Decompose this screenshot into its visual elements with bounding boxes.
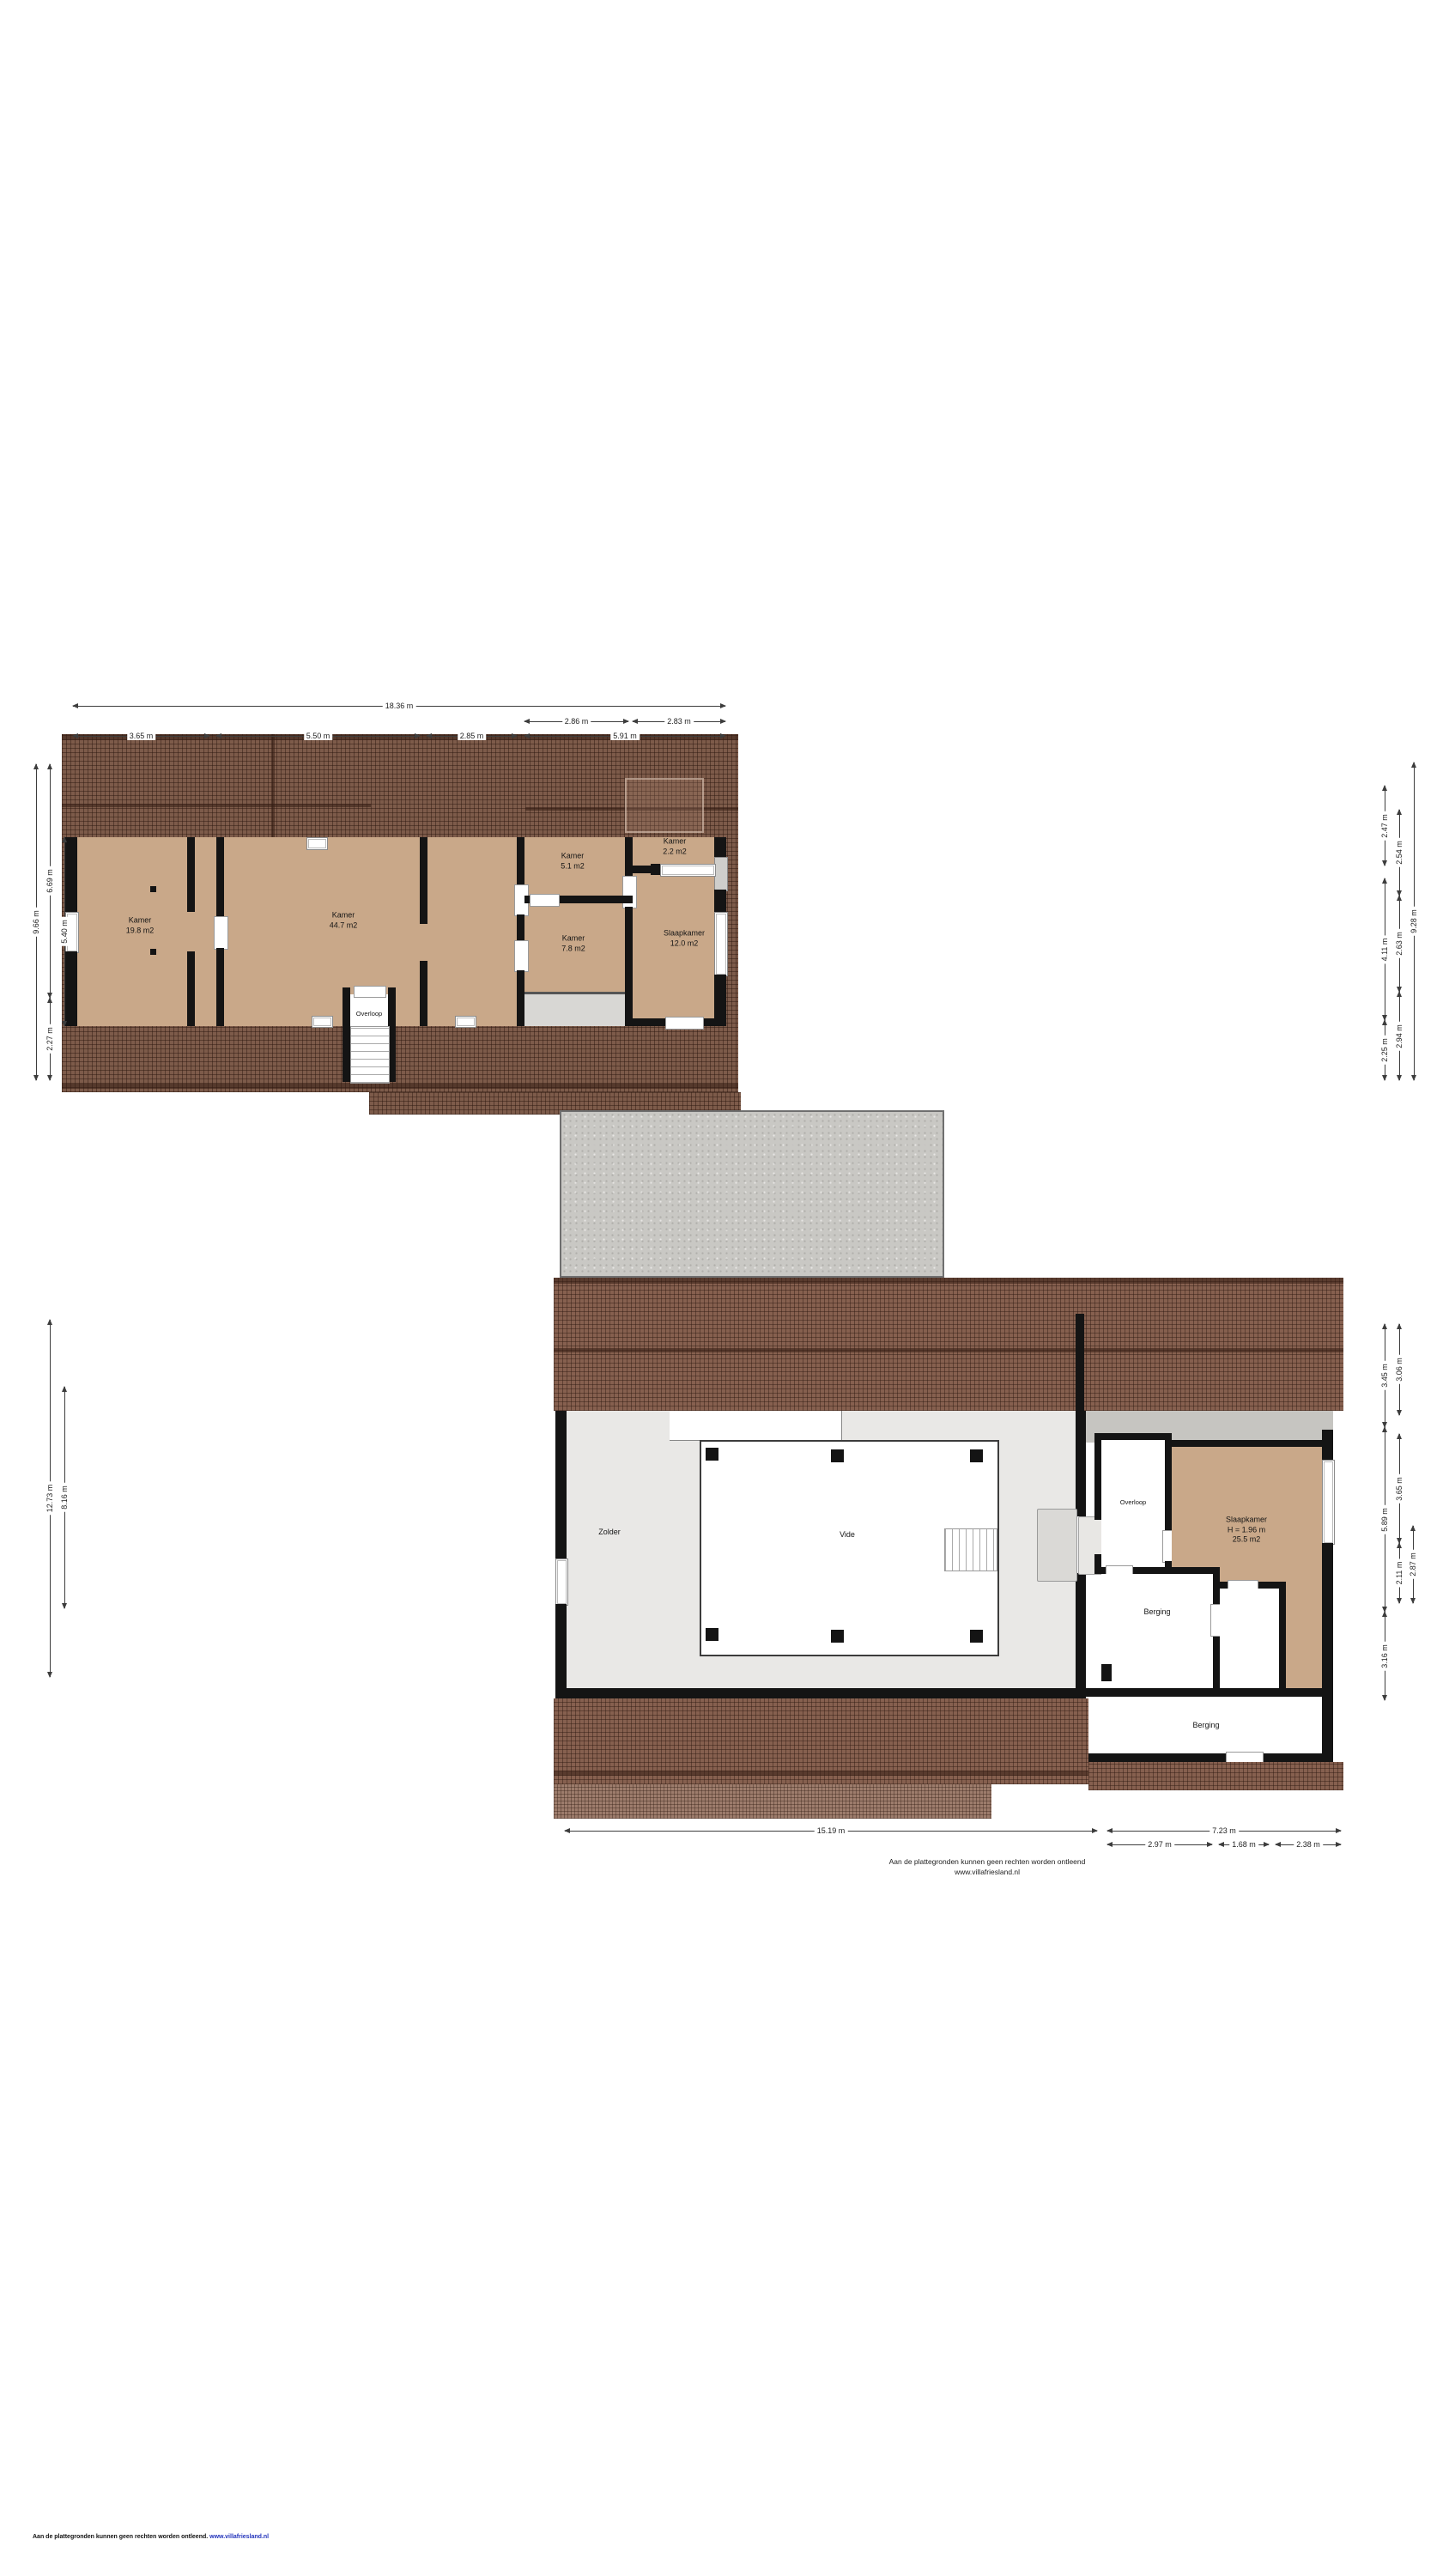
arrow-icon [62,1021,67,1027]
room-label-kamer-5-1: Kamer 5.1 m2 [561,851,585,871]
dimension-15-19-m: 15.19 m [565,1826,1097,1835]
arrow-icon [62,1603,67,1609]
dimension-label: 5.50 m [304,732,333,740]
arrow-icon [1397,1410,1402,1416]
roof-dormer [625,778,704,833]
dimension-label: 3.06 m [1395,1355,1404,1384]
window-gray [714,857,728,891]
door [514,940,529,972]
door [622,876,637,908]
dimension-6-69-m: 6.69 m [45,764,54,998]
pillar [150,886,156,892]
pillar [831,1449,844,1462]
wall-partition [420,837,427,924]
dimension-label: 2.85 m [458,732,487,740]
arrow-icon [1411,762,1416,768]
roof-ridge [62,804,371,807]
arrow-icon [72,703,78,708]
dimension-2-54-m: 2.54 m [1395,810,1404,896]
roof [554,1278,1343,1411]
room-label-berging-lower: Berging [1192,1721,1219,1731]
arrow-icon [47,1672,52,1678]
door [665,1017,704,1030]
room-label-berging-upper: Berging [1143,1607,1170,1618]
arrow-icon [524,733,530,738]
dimension-label: 5.89 m [1380,1505,1389,1534]
wall-stub [651,864,660,875]
dimension-2-94-m: 2.94 m [1395,992,1404,1080]
dimension-label: 3.65 m [127,732,156,740]
room-label-kamer-7-8: Kamer 7.8 m2 [561,933,585,953]
stairs [944,1528,997,1571]
wall-partition [216,837,224,916]
arrow-icon [1397,1323,1402,1329]
dimension-8-16-m: 8.16 m [60,1387,69,1608]
dimension-label: 18.36 m [383,702,416,710]
arrow-icon [1106,1842,1113,1847]
dimension-label: 1.68 m [1229,1840,1258,1849]
dimension-5-40-m: 5.40 m [60,837,69,1026]
room-label-slaapkamer-12-0: Slaapkamer 12.0 m2 [664,928,705,948]
room-label-vide: Vide [840,1530,855,1540]
wall-partition [420,961,427,1026]
wall-left [1094,1433,1101,1520]
arrow-icon [1207,1842,1213,1847]
door [214,916,228,950]
arrow-icon [1382,785,1387,791]
wall-divider [1076,1573,1086,1688]
arrow-icon [47,763,52,769]
door [530,894,560,907]
arrow-icon [1336,1828,1342,1833]
dimension-2-85-m: 2.85 m [427,732,517,740]
arrow-icon [1382,878,1387,884]
wall-partition [187,837,195,912]
wall-divider [1076,1411,1086,1516]
arrow-icon [426,733,432,738]
arrow-icon [72,733,78,738]
dimension-label: 9.28 m [1410,907,1418,936]
room-label-slaapkamer-25-5: Slaapkamer H = 1.96 m 25.5 m2 [1226,1515,1267,1545]
wall-partition [625,837,633,876]
dimension-label: 5.91 m [610,732,640,740]
roof-annex [1088,1762,1343,1790]
floorplan-page: 18.36 m2.86 m2.83 m3.65 m5.50 m2.85 m5.9… [0,0,1449,2576]
dimension-5-50-m: 5.50 m [216,732,420,740]
window [306,837,328,850]
wall-top [1165,1440,1333,1447]
pillar [970,1630,983,1643]
stairs [350,1026,390,1084]
wall-stub [1101,1664,1112,1681]
wall-partition [1165,1433,1172,1530]
dimension-5-91-m: 5.91 m [524,732,725,740]
arrow-icon [1410,1598,1416,1604]
dimension-2-63-m: 2.63 m [1395,896,1404,992]
dimension-3-65-m: 3.65 m [73,732,209,740]
room-label-zolder: Zolder [598,1528,621,1538]
pillar [831,1630,844,1643]
arrow-icon [415,733,421,738]
wall-right [714,837,726,857]
dimension-4-11-m: 4.11 m [1380,878,1389,1020]
arrow-icon [720,733,726,738]
arrow-icon [47,1075,52,1081]
dimension-label: 12.73 m [45,1482,54,1516]
roof-ridge [62,1084,738,1089]
arrow-icon [1397,809,1402,815]
footnote-link: www.villafriesland.nl [209,2534,269,2540]
arrow-icon [1382,1323,1387,1329]
window [455,1016,476,1028]
arrow-icon [1397,1542,1402,1548]
arrow-icon [564,1828,570,1833]
wall-partition [187,951,195,1026]
dimension-label: 2.25 m [1380,1036,1389,1065]
arrow-icon [632,719,638,724]
dimension-2-27-m: 2.27 m [45,998,54,1080]
arrow-icon [1382,860,1387,866]
roof-ridge [554,1771,1088,1776]
dimension-3-06-m: 3.06 m [1395,1324,1404,1415]
arrow-icon [720,703,726,708]
room-label-kamer-19-8: Kamer 19.8 m2 [126,915,155,935]
dimension-2-83-m: 2.83 m [633,717,725,726]
wall-bottom [555,1688,1086,1698]
arrow-icon [1218,1842,1224,1847]
dimension-12-73-m: 12.73 m [45,1320,54,1677]
arrow-icon [47,997,52,1003]
page-footnote: Aan de plattegronden kunnen geen rechten… [33,2534,269,2540]
window [660,864,716,877]
dimension-2-97-m: 2.97 m [1107,1840,1212,1849]
window [555,1558,568,1606]
dimension-7-23-m: 7.23 m [1107,1826,1341,1835]
wall-left [555,1604,567,1688]
room-label-overloop-1: Overloop [356,1010,382,1018]
dimension-label: 2.63 m [1395,929,1404,958]
dimension-2-25-m: 2.25 m [1380,1020,1389,1080]
arrow-icon [1275,1842,1281,1847]
dimension-label: 3.65 m [1395,1474,1404,1504]
window [1322,1460,1335,1545]
arrow-icon [1382,1019,1387,1025]
dimension-5-89-m: 5.89 m [1380,1427,1389,1612]
footnote-text: Aan de plattegronden kunnen geen rechten… [33,2534,209,2540]
wall-partition [216,948,224,1026]
arrow-icon [1397,895,1402,901]
roof-ridge [554,1348,1343,1352]
dimension-label: 2.38 m [1294,1840,1323,1849]
room-label-overloop-2: Overloop [1120,1498,1146,1507]
berging-floor [1101,1574,1213,1688]
landing-floor [524,994,625,1026]
pillar [706,1448,718,1461]
dimension-label: 2.86 m [562,717,591,726]
arrow-icon [1336,1842,1342,1847]
roof-valley [271,734,275,837]
dimension-label: 2.11 m [1395,1559,1404,1588]
website-url: www.villafriesland.nl [955,1868,1020,1876]
roof-lower [554,1784,991,1819]
arrow-icon [1397,1075,1402,1081]
dimension-3-45-m: 3.45 m [1380,1324,1389,1427]
arrow-icon [62,1386,67,1392]
dimension-2-86-m: 2.86 m [524,717,628,726]
dimension-1-68-m: 1.68 m [1219,1840,1269,1849]
wall-top [1094,1433,1172,1440]
wall-right [714,890,726,912]
window [714,912,728,976]
arrow-icon [512,733,518,738]
room-label-kamer-44-7: Kamer 44.7 m2 [330,910,358,930]
arrow-icon [1397,991,1402,997]
wall-partition [517,970,524,1026]
wall-partition [1086,1688,1333,1697]
roof-ridge [554,1278,1343,1284]
dimension-label: 2.27 m [45,1024,54,1054]
dimension-9-66-m: 9.66 m [32,764,40,1080]
dimension-label: 8.16 m [60,1483,69,1512]
storage-room-floor [1220,1589,1279,1688]
pillar [706,1628,718,1641]
dimension-2-38-m: 2.38 m [1276,1840,1341,1849]
dimension-9-28-m: 9.28 m [1410,762,1418,1080]
door [354,986,386,998]
dimension-2-11-m: 2.11 m [1395,1543,1404,1603]
dimension-label: 2.83 m [664,717,694,726]
arrow-icon [1411,1075,1416,1081]
arrow-icon [47,1319,52,1325]
arrow-icon [1382,1611,1387,1617]
dimension-2-47-m: 2.47 m [1380,786,1389,866]
wall-bottom [1086,1753,1333,1762]
window [312,1016,333,1028]
dimension-label: 3.16 m [1380,1642,1389,1671]
dimension-18-36-m: 18.36 m [73,702,725,710]
arrow-icon [720,719,726,724]
dimension-label: 6.69 m [45,866,54,896]
dimension-label: 4.11 m [1380,935,1389,963]
room-label-kamer-2-2: Kamer 2.2 m2 [663,836,687,856]
dimension-label: 3.45 m [1380,1361,1389,1390]
arrow-icon [623,719,629,724]
arrow-icon [1382,1426,1387,1432]
disclaimer-line1: Aan de plattegronden kunnen geen rechten… [889,1857,1086,1866]
concrete-area [560,1110,944,1278]
wall-partition [517,837,524,884]
arrow-icon [1264,1842,1270,1847]
wall-stairwell [343,987,350,1082]
arrow-icon [62,836,67,842]
dimension-label: 2.47 m [1380,811,1389,841]
arrow-icon [1382,1695,1387,1701]
arrow-icon [215,733,221,738]
arrow-icon [1397,1433,1402,1439]
arrow-icon [204,733,210,738]
open-notch [670,1411,842,1441]
dimension-3-65-m: 3.65 m [1395,1434,1404,1543]
door-vestibule [1037,1509,1077,1582]
wall-right [1322,1543,1333,1762]
dimension-label: 5.40 m [60,917,69,946]
arrow-icon [1397,1598,1402,1604]
dimension-label: 2.87 m [1409,1550,1417,1579]
arrow-icon [1106,1828,1113,1833]
arrow-icon [1410,1525,1416,1531]
arrow-icon [1382,1075,1387,1081]
arrow-icon [33,763,39,769]
arrow-icon [33,1075,39,1081]
wall-partition [625,907,633,1026]
arrow-icon [1092,1828,1098,1833]
wall-partition [1279,1582,1286,1688]
dimension-label: 9.66 m [32,908,40,937]
landing-edge [524,992,625,994]
dimension-label: 15.19 m [815,1826,848,1835]
wall-partition [517,914,524,940]
dimension-label: 2.97 m [1145,1840,1174,1849]
dimension-label: 7.23 m [1210,1826,1239,1835]
pillar [150,949,156,955]
dimension-3-16-m: 3.16 m [1380,1612,1389,1700]
dimension-label: 2.54 m [1395,838,1404,867]
wall-left [555,1411,567,1558]
arrow-icon [524,719,530,724]
wall-right [1322,1430,1333,1460]
pillar [970,1449,983,1462]
dimension-2-87-m: 2.87 m [1409,1526,1417,1603]
dimension-label: 2.94 m [1395,1022,1404,1051]
wall-in-roof [1076,1314,1084,1411]
